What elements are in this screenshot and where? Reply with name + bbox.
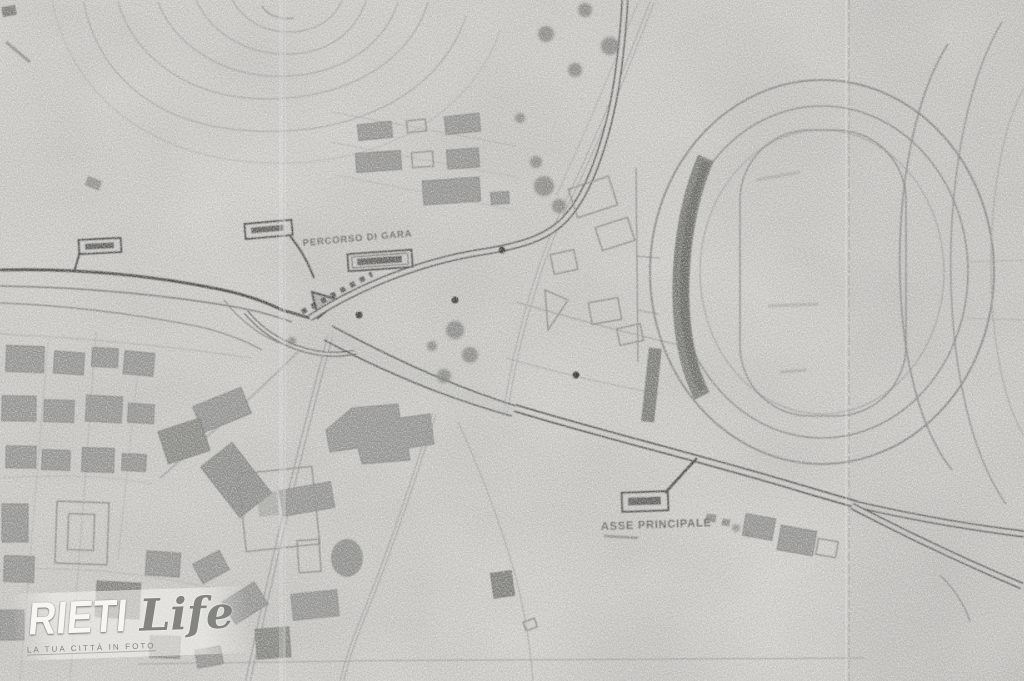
watermark: RIETI Life LA TUA CITTÀ IN FOTO	[13, 586, 249, 661]
watermark-brand: RIETI Life	[25, 588, 235, 642]
scanned-road-plan-map: PERCORSO DI GARA ASSE PRINCIPALE RIETI L…	[0, 0, 1024, 681]
watermark-brand-primary: RIETI	[27, 592, 130, 642]
watermark-brand-secondary: Life	[139, 591, 235, 638]
map-canvas: PERCORSO DI GARA ASSE PRINCIPALE	[0, 0, 1024, 681]
grain-white-texture	[0, 0, 1024, 681]
